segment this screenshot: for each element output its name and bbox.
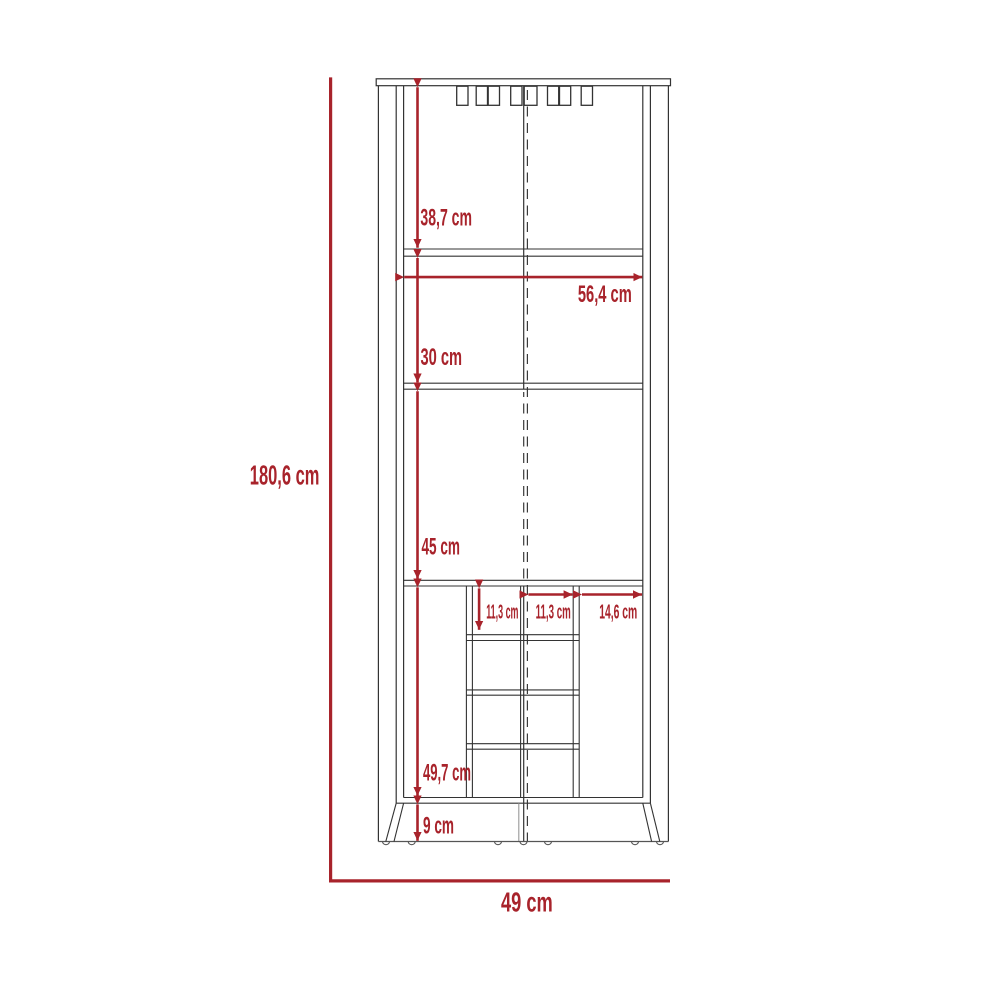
svg-text:45 cm: 45 cm — [422, 533, 461, 560]
svg-text:11,3 cm: 11,3 cm — [536, 601, 571, 623]
svg-text:11,3 cm: 11,3 cm — [486, 601, 518, 623]
svg-text:14,6 cm: 14,6 cm — [599, 601, 637, 623]
svg-text:30 cm: 30 cm — [421, 344, 463, 371]
svg-text:49,7 cm: 49,7 cm — [423, 760, 471, 787]
svg-text:38,7 cm: 38,7 cm — [420, 205, 472, 232]
svg-text:9 cm: 9 cm — [423, 812, 454, 839]
svg-text:49 cm: 49 cm — [501, 886, 553, 917]
svg-text:56,4 cm: 56,4 cm — [578, 281, 632, 308]
svg-text:180,6 cm: 180,6 cm — [250, 459, 320, 490]
